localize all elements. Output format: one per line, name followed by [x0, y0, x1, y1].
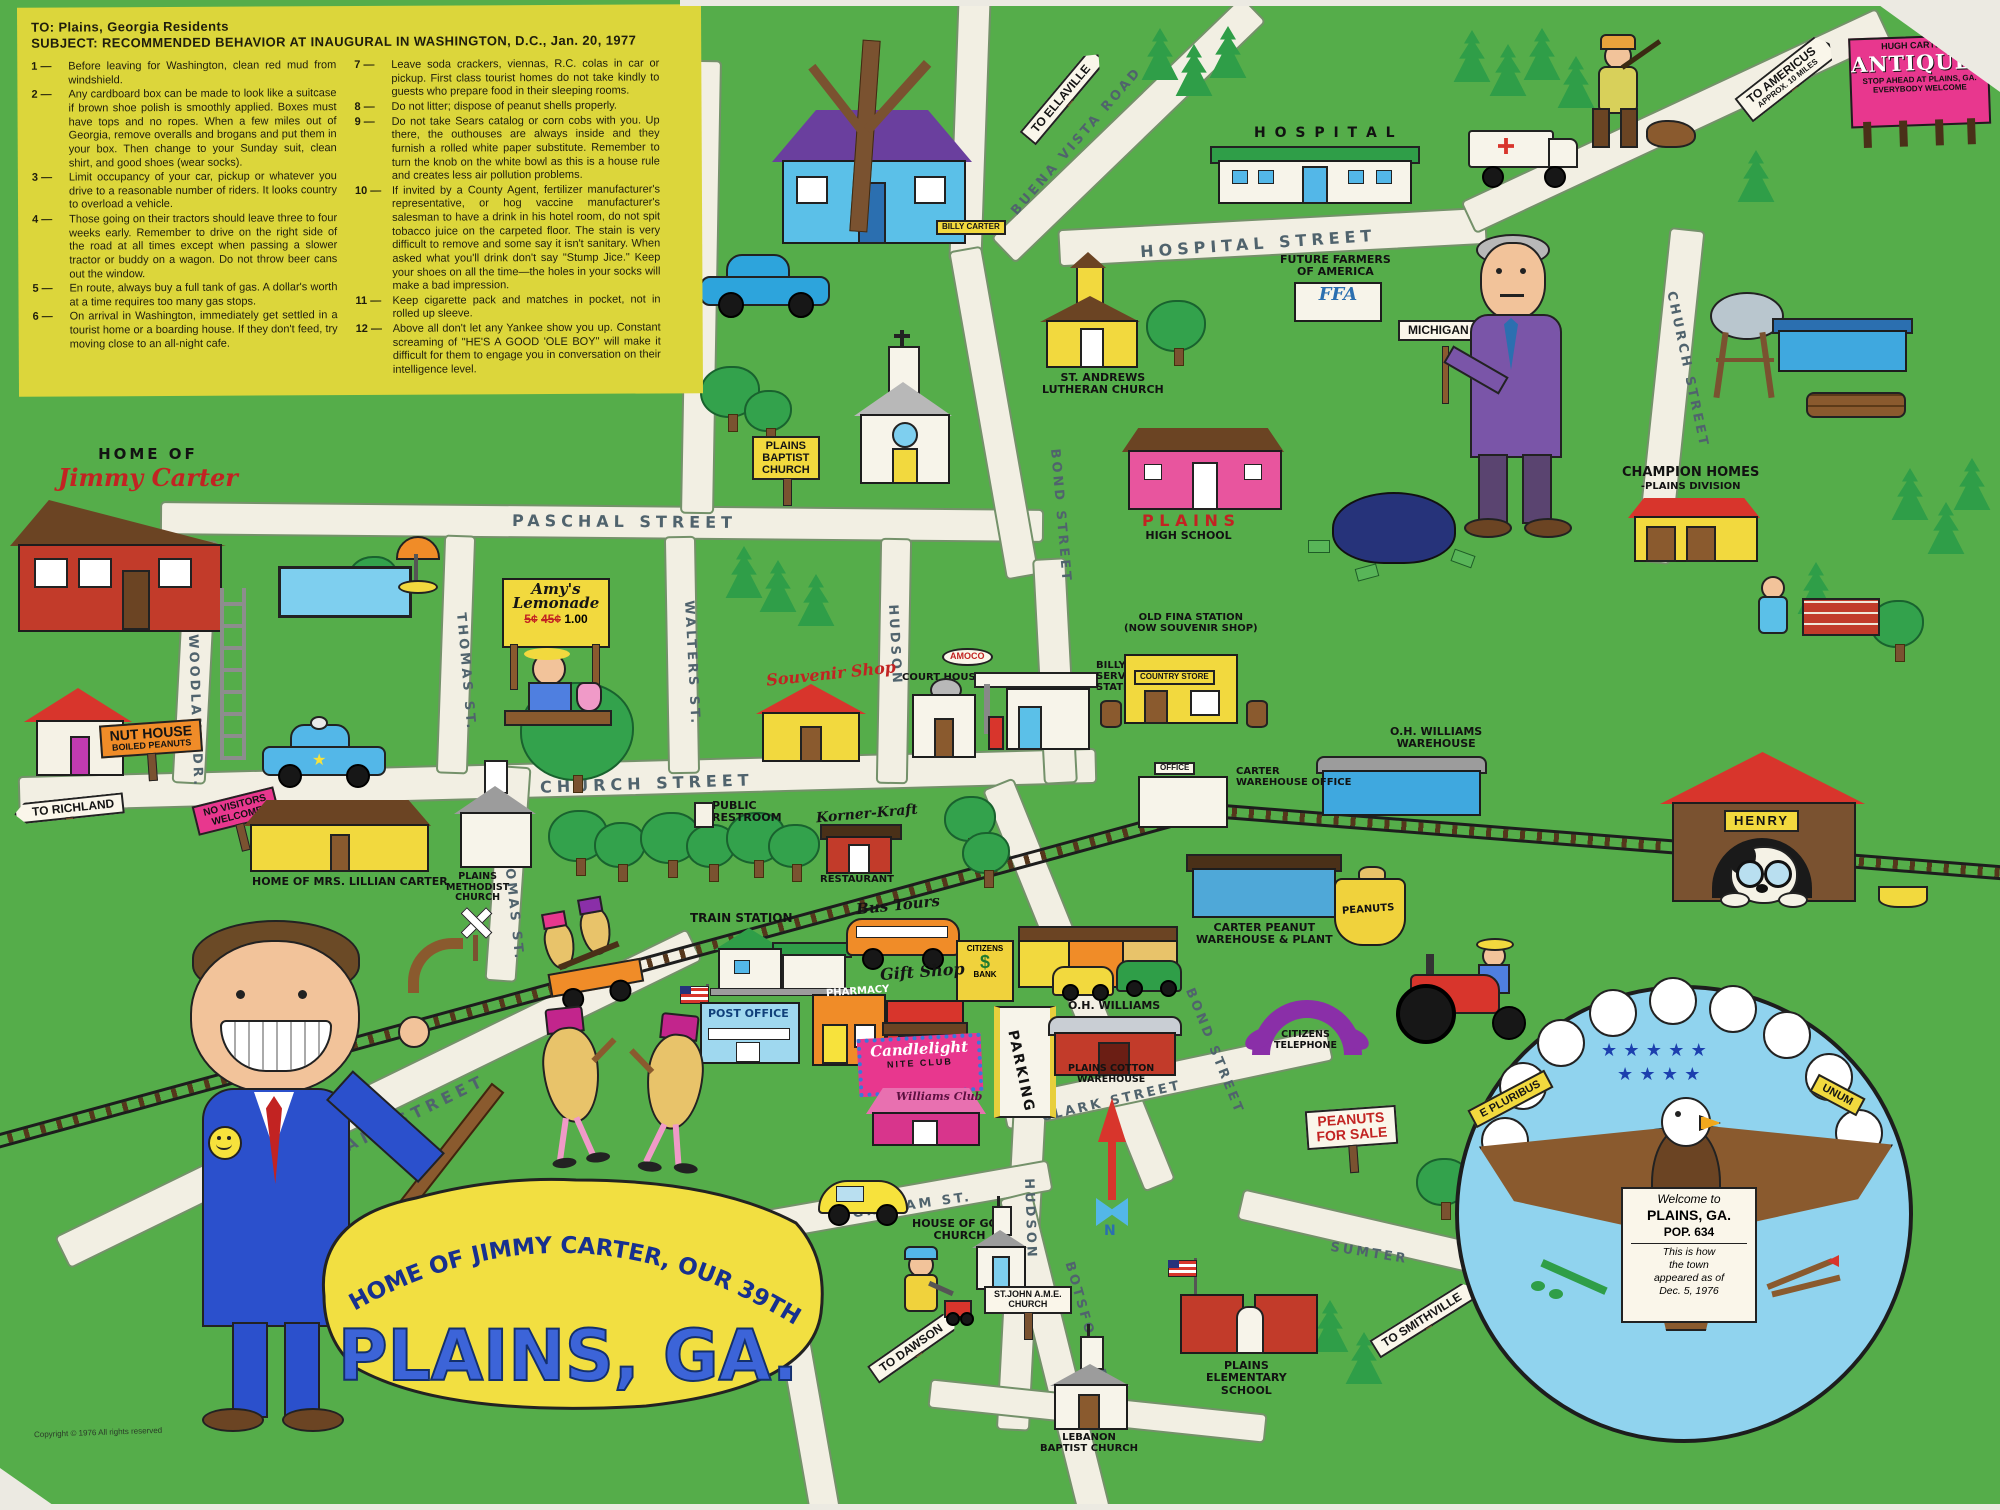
- old-fina-station: COUNTRY STORE: [1124, 644, 1239, 724]
- inaugural-behavior-memo: TO: Plains, Georgia Residents SUBJECT: R…: [17, 4, 703, 396]
- carter-peanut-plant-label: CARTER PEANUT WAREHOUSE & PLANT: [1196, 922, 1333, 947]
- amys-lemonade-stand: Amy's Lemonade 5¢ 45¢ 1.00: [502, 578, 612, 723]
- memo-item-text: Above all don't let any Yankee show you …: [393, 322, 661, 378]
- plains-baptist-sign: PLAINS BAPTIST CHURCH: [752, 436, 820, 480]
- memo-item: 7 —Leave soda crackers, viennas, R.C. co…: [354, 58, 659, 100]
- memo-item: 12 —Above all don't let any Yankee show …: [356, 322, 661, 378]
- barrel: [1100, 700, 1122, 728]
- cotton-line3: WAREHOUSE: [1068, 1075, 1154, 1086]
- memo-subject: SUBJECT: RECOMMENDED BEHAVIOR AT INAUGUR…: [31, 32, 687, 52]
- baptist-roof: [854, 382, 952, 416]
- train-station-label: TRAIN STATION: [690, 912, 793, 925]
- post-office-label: POST OFFICE: [708, 1008, 789, 1020]
- michigan-sign: MICHIGAN: [1398, 320, 1479, 341]
- amys-new-price: 1.00: [564, 612, 587, 626]
- police-star-icon: ★: [312, 750, 326, 770]
- memo-item: 9 —Do not take Sears catalog or corn cob…: [355, 114, 660, 184]
- methodist-body: [460, 812, 532, 868]
- st-andrews-church: [1046, 266, 1136, 366]
- oh-williams-warehouse-label: O.H. WILLIAMS WAREHOUSE: [1390, 726, 1482, 751]
- jimmy-carter-house: [18, 500, 218, 630]
- billy-carter-mailbox: BILLY CARTER: [936, 220, 1006, 235]
- plains-ga-cartoon-map: PASCHAL STREET CHURCH STREET HOSPITAL ST…: [0, 0, 2000, 1510]
- poster-edge-top: [680, 0, 2000, 6]
- memo-item: 11 —Keep cigarette pack and matches in p…: [355, 293, 660, 322]
- pine-tree: [1890, 468, 1930, 520]
- house-of-god-church: [974, 1206, 1028, 1290]
- lemonade-pitcher: [576, 682, 602, 712]
- williams-line1: Williams: [896, 1090, 950, 1103]
- memo-column-left: 1 —Before leaving for Washington, clean …: [31, 59, 338, 380]
- north-compass: N: [1090, 1098, 1134, 1248]
- memo-item-text: Leave soda crackers, viennas, R.C. colas…: [391, 58, 659, 100]
- lillian-carter-house: [250, 800, 425, 870]
- williams-club: Williams Club: [872, 1088, 980, 1144]
- seal-note4: Dec. 5, 1976: [1623, 1285, 1755, 1298]
- patio-umbrella: [396, 536, 436, 592]
- office-sign: OFFICE: [1154, 762, 1195, 775]
- memo-item-text: On arrival in Washington, immediately ge…: [70, 310, 338, 352]
- memo-item: 5 —En route, always buy a full tank of g…: [32, 281, 337, 310]
- parking-sign: PARKING: [994, 1006, 1056, 1118]
- home-of-label: HOME OF: [58, 446, 238, 463]
- champion-homes-label: CHAMPION HOMES -PLAINS DIVISION: [1622, 466, 1759, 492]
- blue-car: [700, 254, 828, 304]
- seal-note1: This is how: [1623, 1246, 1755, 1259]
- great-seal: ★ ★ ★ ★ ★ ★ ★ ★ ★ E PLURIBUS UNUM Welcom…: [1455, 985, 1913, 1443]
- seal-stars-row2: ★ ★ ★ ★: [1617, 1065, 1700, 1085]
- methodist-label: PLAINS METHODIST CHURCH: [446, 872, 509, 904]
- baptist-round-window: [892, 422, 918, 448]
- baptist-sign-line2: BAPTIST: [762, 452, 810, 464]
- dog-bowl: [1878, 886, 1928, 908]
- henry-glasses-right: [1764, 860, 1792, 888]
- pfs-line2: FOR SALE: [1316, 1125, 1388, 1145]
- copyright-note: Copyright © 1976 All rights reserved: [34, 1426, 162, 1439]
- home-of-jimmy-carter-sign: HOME OF Jimmy Carter: [58, 446, 238, 492]
- michigan-label: MICHIGAN: [1408, 323, 1469, 337]
- memo-column-right: 7 —Leave soda crackers, viennas, R.C. co…: [354, 58, 661, 379]
- lebanon-label: LEBANON BAPTIST CHURCH: [1040, 1432, 1138, 1454]
- shade-tree: [1146, 300, 1206, 352]
- bank-line2: BANK: [958, 971, 1012, 979]
- brick-pile: [1802, 598, 1880, 636]
- court-house: [912, 688, 976, 758]
- pine-tree: [1488, 44, 1528, 96]
- lillian-house-label: HOME OF MRS. LILLIAN CARTER: [252, 876, 448, 888]
- memo-item: 10 —If invited by a County Agent, fertil…: [355, 183, 661, 294]
- plains-methodist-church: [458, 780, 532, 868]
- amys-sign: Amy's Lemonade 5¢ 45¢ 1.00: [502, 578, 610, 648]
- lebanon-line2: BAPTIST CHURCH: [1040, 1443, 1138, 1454]
- amys-old-price2: 45¢: [541, 612, 561, 626]
- henry-doghouse: HENRY: [1672, 752, 1857, 902]
- old-fina-label: OLD FINA STATION (NOW SOUVENIR SHOP): [1124, 612, 1258, 634]
- pine-tree: [1452, 30, 1492, 82]
- citizens-telephone-label: CITIZENS TELEPHONE: [1274, 1030, 1337, 1051]
- champion-line2: -PLAINS DIVISION: [1622, 481, 1759, 492]
- hospital-building: [1218, 146, 1408, 202]
- williams-club-label: Williams Club: [896, 1090, 982, 1103]
- ffa-line2: OF AMERICA: [1280, 266, 1391, 278]
- memo-item: 2 —Any cardboard box can be made to look…: [31, 88, 336, 171]
- memo-item-num: 2 —: [31, 89, 68, 171]
- compass-n-label: N: [1104, 1224, 1116, 1240]
- amys-line2: Lemonade: [504, 594, 608, 612]
- parked-car-green: [1116, 960, 1182, 992]
- memo-item-num: 3 —: [32, 172, 69, 213]
- seal-city: PLAINS, GA.: [1623, 1207, 1755, 1225]
- carter-office-line2: WAREHOUSE OFFICE: [1236, 777, 1351, 788]
- jimmy-cane-hook: [408, 938, 463, 993]
- ffa-letters: FFA: [1319, 284, 1357, 305]
- pine-tree: [1140, 28, 1180, 80]
- public-restroom-label: PUBLIC RESTROOM: [712, 800, 782, 825]
- citizens-telephone: CITIZENS TELEPHONE: [1252, 1000, 1372, 1066]
- billys-service-station: [982, 672, 1092, 758]
- hunter: [1588, 42, 1648, 152]
- ford-head: [1480, 242, 1546, 320]
- memo-item-text: Before leaving for Washington, clean red…: [68, 59, 336, 88]
- blue-warehouse-ne: [1778, 318, 1903, 370]
- cotton-warehouse-label-top: O.H. WILLIAMS: [1068, 1000, 1160, 1012]
- st-john-line2: CHURCH: [994, 1300, 1062, 1310]
- amoco-label: AMOCO: [950, 651, 985, 661]
- pine-tree: [724, 546, 764, 598]
- poster-edge-bottom: [0, 1504, 2000, 1510]
- street-label-paschal: PASCHAL STREET: [512, 511, 737, 532]
- memo-item: 1 —Before leaving for Washington, clean …: [31, 59, 336, 88]
- ffa-label: FUTURE FARMERS OF AMERICA: [1280, 254, 1391, 279]
- restroom-line2: RESTROOM: [712, 812, 782, 824]
- plains-high-school: [1128, 428, 1278, 508]
- memo-item-text: Those going on their tractors should lea…: [69, 212, 337, 282]
- korner-kraft-building: [826, 824, 892, 872]
- high-line1: P L A I N S: [1142, 512, 1235, 530]
- memo-item-num: 12 —: [356, 323, 393, 378]
- elem-line2: ELEMENTARY: [1206, 1372, 1287, 1384]
- williams-line2: Club: [954, 1090, 983, 1103]
- pine-tree: [1522, 28, 1562, 80]
- memo-item-num: 1 —: [31, 61, 68, 88]
- memo-item-num: 6 —: [33, 311, 70, 352]
- shade-tree: [768, 824, 820, 868]
- old-fina-line2: (NOW SOUVENIR SHOP): [1124, 623, 1258, 634]
- smiley-button: [208, 1126, 242, 1160]
- elementary-label: PLAINS ELEMENTARY SCHOOL: [1206, 1360, 1287, 1397]
- carter-peanut-plant: [1192, 854, 1332, 918]
- money-bill: [1450, 549, 1475, 569]
- lillian-roof: [244, 800, 431, 826]
- hunting-dog: [1646, 120, 1696, 148]
- memo-item-text: Do not take Sears catalog or corn cobs w…: [392, 114, 660, 184]
- parking-label: PARKING: [1004, 1029, 1033, 1095]
- ffa-building: FFA: [1294, 282, 1382, 322]
- billy-mailbox-label: BILLY CARTER: [942, 222, 1000, 231]
- country-store-sign: COUNTRY STORE: [1134, 670, 1215, 685]
- peanut-handcar: [537, 900, 647, 1011]
- jimmy-hand: [398, 1016, 430, 1048]
- memo-item-num: 7 —: [354, 59, 391, 100]
- memo-item-text: Keep cigarette pack and matches in pocke…: [392, 293, 660, 322]
- phone-line2: TELEPHONE: [1274, 1041, 1337, 1052]
- jimmy-carter-script: Jimmy Carter: [58, 463, 238, 492]
- parked-car-yellow: [1052, 966, 1114, 996]
- memo-item-text: Any cardboard box can be made to look li…: [68, 88, 336, 171]
- gas-pump-icon: [988, 716, 1004, 750]
- memo-item-text: If invited by a County Agent, fertilizer…: [392, 183, 661, 293]
- shade-tree: [744, 390, 792, 432]
- title-main-text: PLAINS, GA.: [338, 1315, 798, 1397]
- doghouse-roof: [1660, 752, 1865, 804]
- henry-name-plate: HENRY: [1724, 810, 1799, 832]
- water-tower: [1706, 292, 1784, 402]
- carter-office-line1: CARTER: [1236, 766, 1351, 777]
- nut-house-sign: NUT HOUSE BOILED PEANUTS: [99, 718, 204, 758]
- ambulance: [1468, 130, 1576, 180]
- memo-item-num: 8 —: [354, 101, 391, 115]
- log-pile: [1806, 392, 1906, 418]
- oh-wh-line2: WAREHOUSE: [1390, 738, 1482, 750]
- tractor: [1396, 944, 1531, 1040]
- high-line2: HIGH SCHOOL: [1142, 530, 1235, 542]
- memo-item-num: 4 —: [32, 214, 69, 282]
- amoco-sign: AMOCO: [942, 648, 993, 666]
- amys-old-price1: 5¢: [524, 612, 537, 626]
- country-store-label: COUNTRY STORE: [1140, 672, 1209, 681]
- seal-welcome: Welcome to: [1623, 1192, 1755, 1207]
- st-andrews-roof: [1040, 296, 1140, 322]
- memo-item: 4 —Those going on their tractors should …: [32, 212, 337, 282]
- carter-office-label: CARTER WAREHOUSE OFFICE: [1236, 766, 1351, 788]
- plains-elementary-school: [1180, 1288, 1320, 1354]
- cotton-warehouse-label-bottom: PLAINS COTTON WAREHOUSE: [1068, 1064, 1154, 1085]
- memo-item-text: Limit occupancy of your car, pickup or w…: [69, 170, 337, 212]
- seal-welcome-sign: Welcome to PLAINS, GA. POP. 634 This is …: [1621, 1187, 1757, 1323]
- peanuts-for-sale-sign: PEANUTS FOR SALE: [1305, 1105, 1398, 1150]
- st-john-sign: ST.JOHN A.M.E. CHURCH: [984, 1286, 1072, 1314]
- high-roof: [1122, 428, 1284, 452]
- baptist-sign-line1: PLAINS: [762, 440, 810, 452]
- methodist-line3: CHURCH: [446, 893, 509, 904]
- money-bill: [1355, 563, 1380, 581]
- mower-man: [898, 1252, 968, 1332]
- tour-bus: [846, 918, 958, 964]
- baptist-sign-line3: CHURCH: [762, 464, 810, 476]
- memo-item-num: 5 —: [32, 283, 69, 310]
- elem-line3: SCHOOL: [1206, 1385, 1287, 1397]
- shade-tree: [594, 822, 646, 868]
- korner-restaurant-label: RESTAURANT: [820, 874, 894, 885]
- pine-tree: [758, 560, 798, 612]
- plains-high-label: P L A I N S HIGH SCHOOL: [1142, 512, 1235, 542]
- souvenir-shop: [762, 684, 860, 760]
- windmill-tower: [220, 588, 246, 760]
- seal-note2: the town: [1623, 1259, 1755, 1272]
- seal-note3: appeared as of: [1623, 1272, 1755, 1285]
- peanuts-bag: PEANUTS: [1334, 874, 1406, 946]
- champion-homes-building: [1634, 498, 1754, 560]
- office-label: OFFICE: [1160, 763, 1189, 772]
- hospital-label: H O S P I T A L: [1254, 126, 1397, 142]
- seal-stars-row1: ★ ★ ★ ★ ★: [1601, 1041, 1707, 1061]
- memo-item-num: 11 —: [355, 295, 392, 322]
- henry-label: HENRY: [1734, 813, 1789, 828]
- champion-line1: CHAMPION HOMES: [1622, 466, 1759, 481]
- memo-item-text: Do not litter; dispose of peanut shells …: [391, 100, 659, 115]
- pine-tree: [1736, 150, 1776, 202]
- old-fina-line1: OLD FINA STATION: [1124, 612, 1258, 623]
- plant-line2: WAREHOUSE & PLANT: [1196, 934, 1333, 946]
- money-bill: [1308, 540, 1330, 553]
- memo-item: 3 —Limit occupancy of your car, pickup o…: [32, 170, 337, 212]
- pine-tree: [1952, 458, 1992, 510]
- memo-item: 8 —Do not litter; dispose of peanut shel…: [354, 100, 659, 115]
- money-bag: [1332, 492, 1456, 564]
- sign-to-smithville: TO SMITHVILLE: [1369, 1279, 1480, 1359]
- lebanon-baptist-church: [1052, 1336, 1132, 1428]
- nut-house-roof: [24, 688, 132, 722]
- pine-tree: [796, 574, 836, 626]
- memo-item-text: En route, always buy a full tank of gas.…: [69, 281, 337, 310]
- outhouse: [694, 802, 714, 828]
- memo-item: 6 —On arrival in Washington, immediately…: [33, 310, 338, 352]
- carter-warehouse-office: OFFICE: [1138, 770, 1228, 826]
- police-car: ★: [262, 724, 384, 776]
- memo-item-num: 9 —: [355, 116, 392, 184]
- st-andrews-label: ST. ANDREWS LUTHERAN CHURCH: [1042, 372, 1164, 397]
- st-andrews-line2: LUTHERAN CHURCH: [1042, 384, 1164, 396]
- railroad-crossing-sign: [458, 905, 492, 939]
- barrel: [1246, 700, 1268, 728]
- swimming-pool: [278, 566, 412, 618]
- methodist-roof: [454, 786, 536, 814]
- korner-kraft-label: Korner-Kraft: [815, 802, 918, 827]
- train-station: [710, 928, 845, 992]
- memo-item-num: 10 —: [355, 185, 393, 294]
- bank-dollar: $: [958, 953, 1012, 971]
- title-blob: HOME OF JIMMY CARTER, OUR 39TH PRES. PLA…: [296, 1128, 836, 1428]
- sign-to-smithville-label: TO SMITHVILLE: [1379, 1290, 1464, 1350]
- house-roof: [10, 500, 226, 546]
- plains-baptist-church: [848, 330, 983, 490]
- lebanon-line1: LEBANON: [1040, 1432, 1138, 1443]
- bricklayer: [1756, 576, 1786, 632]
- seal-pop: POP. 634: [1623, 1225, 1755, 1240]
